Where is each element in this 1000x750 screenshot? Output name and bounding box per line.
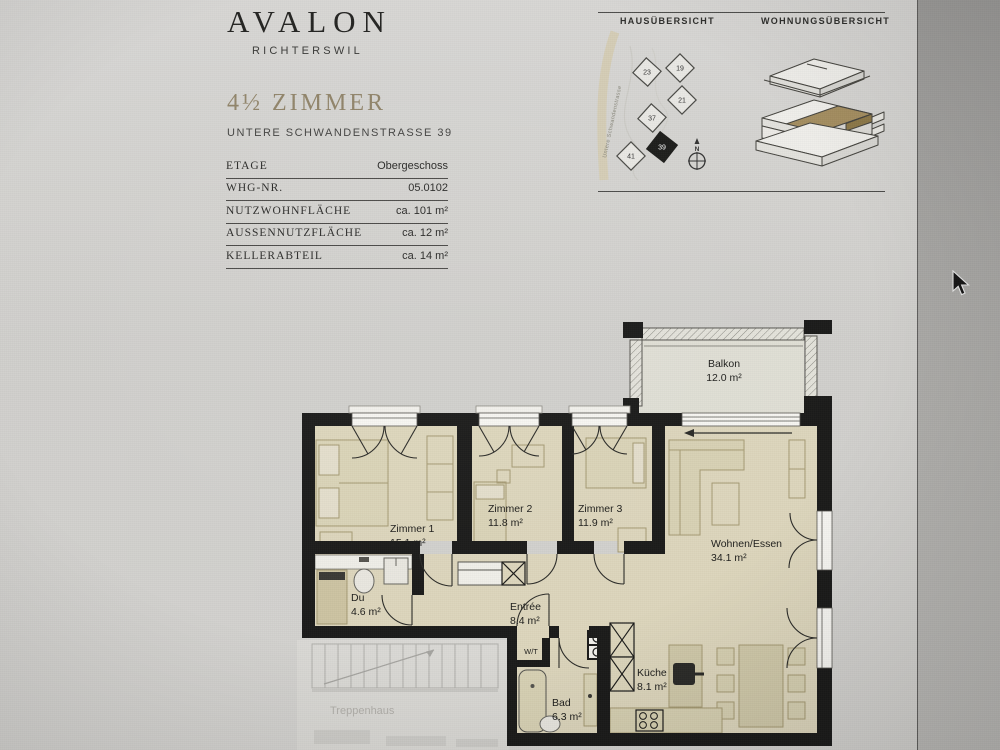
screen-photo: AVALON RICHTERSWIL 4½ ZIMMER UNTERE SCHW… <box>0 0 1000 750</box>
unit-address: UNTERE SCHWANDENSTRASSE 39 <box>227 127 453 139</box>
svg-text:19: 19 <box>676 66 684 73</box>
vanity <box>584 674 597 726</box>
window <box>479 413 539 426</box>
table-row: ETAGE Obergeschoss <box>226 156 448 179</box>
unit-overview-title: WOHNUNGSÜBERSICHT <box>761 16 890 26</box>
building-marker: 19 <box>666 54 694 82</box>
room-label: Bad <box>552 697 571 709</box>
row-label: AUSSENNUTZFLÄCHE <box>226 227 362 239</box>
table-row: KELLERABTEIL ca. 14 m² <box>226 246 448 269</box>
table-row: AUSSENNUTZFLÄCHE ca. 12 m² <box>226 224 448 247</box>
row-value: ca. 101 m² <box>396 205 448 217</box>
sliding-door <box>682 413 800 426</box>
row-label: WHG-NR. <box>226 182 283 194</box>
desk <box>512 445 544 467</box>
building-marker: 21 <box>668 86 696 114</box>
brand-logo: AVALON <box>200 4 412 40</box>
room-area: 8.4 m² <box>510 615 540 627</box>
room-label: W/T <box>524 647 538 656</box>
building-marker: 37 <box>638 104 666 132</box>
dining-table <box>739 645 783 727</box>
svg-text:37: 37 <box>648 116 656 123</box>
details-table: ETAGE Obergeschoss WHG-NR. 05.0102 NUTZW… <box>226 156 448 269</box>
svg-text:23: 23 <box>643 70 651 77</box>
floor-plan: Treppenhaus <box>292 318 840 750</box>
stairwell-label: Treppenhaus <box>330 705 395 717</box>
room-area: 15.1 m² <box>390 537 426 549</box>
desktop-background <box>917 0 1000 750</box>
building-marker-highlighted: 39 <box>647 132 678 163</box>
row-value: ca. 12 m² <box>402 227 448 239</box>
room-area: 6.3 m² <box>552 711 582 723</box>
building-marker: 23 <box>633 58 661 86</box>
panel-top-rule <box>598 12 885 13</box>
room-label: Zimmer 1 <box>390 523 434 535</box>
room-area: 12.0 m² <box>706 372 742 384</box>
table-row: NUTZWOHNFLÄCHE ca. 101 m² <box>226 201 448 224</box>
window <box>352 413 417 426</box>
building-marker: 41 <box>617 142 645 170</box>
page-title: 4½ ZIMMER <box>227 90 386 117</box>
window <box>572 413 627 426</box>
svg-text:41: 41 <box>627 154 635 161</box>
panel-bottom-rule <box>598 191 885 192</box>
kitchen-counter <box>610 708 722 733</box>
room-area: 11.8 m² <box>488 517 523 529</box>
site-overview-title: HAUSÜBERSICHT <box>620 16 715 26</box>
row-label: NUTZWOHNFLÄCHE <box>226 205 351 217</box>
room-area: 4.6 m² <box>351 606 381 618</box>
room-label: Zimmer 3 <box>578 503 622 515</box>
french-door <box>817 608 832 668</box>
brand-subtitle: RICHTERSWIL <box>200 45 412 57</box>
room-area: 11.9 m² <box>578 517 613 529</box>
compass-north-label: N <box>695 146 700 153</box>
french-door <box>817 511 832 570</box>
row-label: KELLERABTEIL <box>226 250 323 262</box>
wardrobe <box>427 436 453 520</box>
row-label: ETAGE <box>226 160 268 172</box>
attic-floor-slab <box>764 59 870 97</box>
svg-text:39: 39 <box>658 145 666 152</box>
hall-cabinet <box>458 562 502 585</box>
sink <box>354 569 374 593</box>
building-isometric <box>752 50 887 175</box>
island-sink <box>673 663 695 685</box>
mouse-cursor <box>950 269 974 299</box>
room-label: Du <box>351 592 365 604</box>
svg-text:21: 21 <box>678 98 686 105</box>
row-value: Obergeschoss <box>377 160 448 172</box>
brand-block: AVALON RICHTERSWIL <box>200 4 412 57</box>
room-label: Entrée <box>510 601 541 613</box>
room-area: 8.1 m² <box>637 681 667 693</box>
main-building-stack <box>756 100 884 166</box>
row-value: 05.0102 <box>408 182 448 194</box>
room-label: Zimmer 2 <box>488 503 532 515</box>
table-row: WHG-NR. 05.0102 <box>226 179 448 202</box>
compass-icon: N <box>688 138 706 170</box>
room-area: 34.1 m² <box>711 552 747 564</box>
room-label: Küche <box>637 667 667 679</box>
site-map: Untere Schwandenstrasse 23 19 21 37 41 3… <box>592 28 720 186</box>
room-label: Wohnen/Essen <box>711 538 782 550</box>
room-label: Balkon <box>708 358 740 370</box>
row-value: ca. 14 m² <box>402 250 448 262</box>
stairwell: Treppenhaus <box>297 640 509 750</box>
